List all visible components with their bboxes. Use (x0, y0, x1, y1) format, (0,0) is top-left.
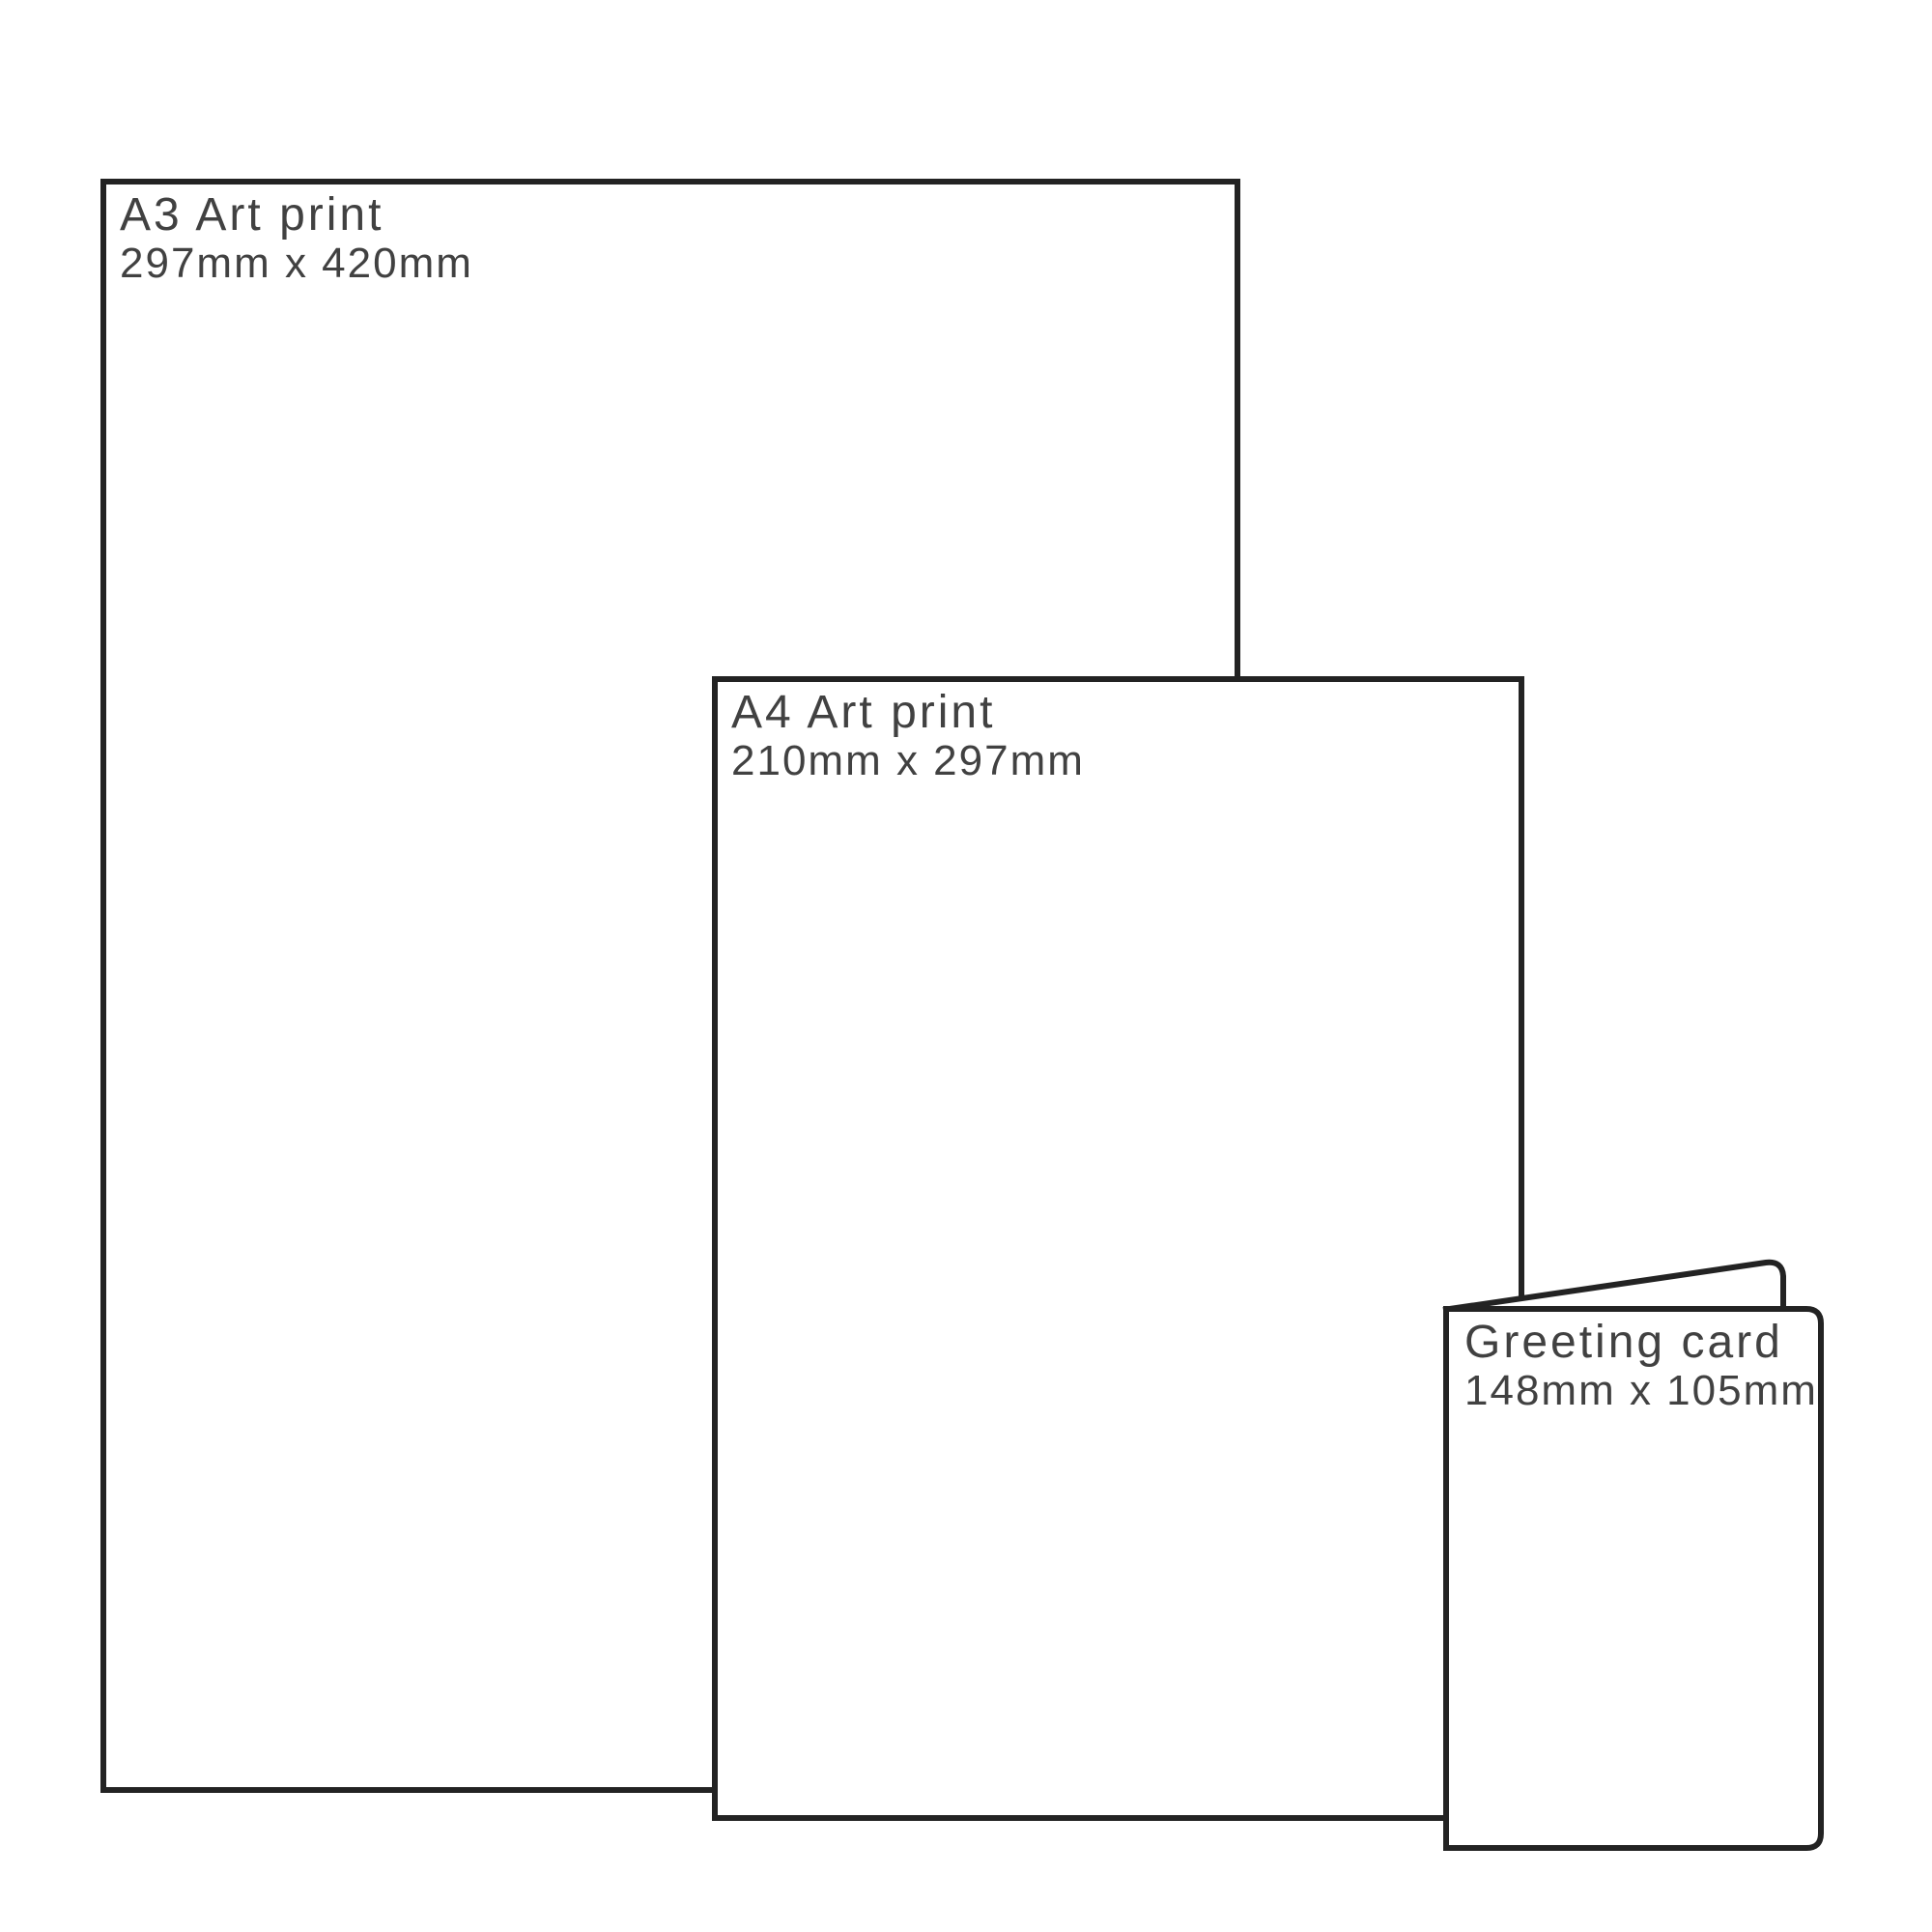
a3-dimensions: 297mm x 420mm (120, 241, 473, 286)
size-outlines (0, 0, 1932, 1932)
a4-size-label: A4 Art print 210mm x 297mm (731, 689, 1085, 783)
greeting-card-dimensions: 148mm x 105mm (1464, 1369, 1818, 1413)
a3-title: A3 Art print (120, 191, 473, 240)
size-comparison-diagram: A3 Art print 297mm x 420mm A4 Art print … (0, 0, 1932, 1932)
greeting-card-title: Greeting card (1464, 1319, 1818, 1367)
a4-title: A4 Art print (731, 689, 1085, 737)
a4-dimensions: 210mm x 297mm (731, 739, 1085, 783)
a3-size-label: A3 Art print 297mm x 420mm (120, 191, 473, 286)
a4-sheet-outline (715, 679, 1521, 1818)
greeting-card-size-label: Greeting card 148mm x 105mm (1464, 1319, 1818, 1413)
